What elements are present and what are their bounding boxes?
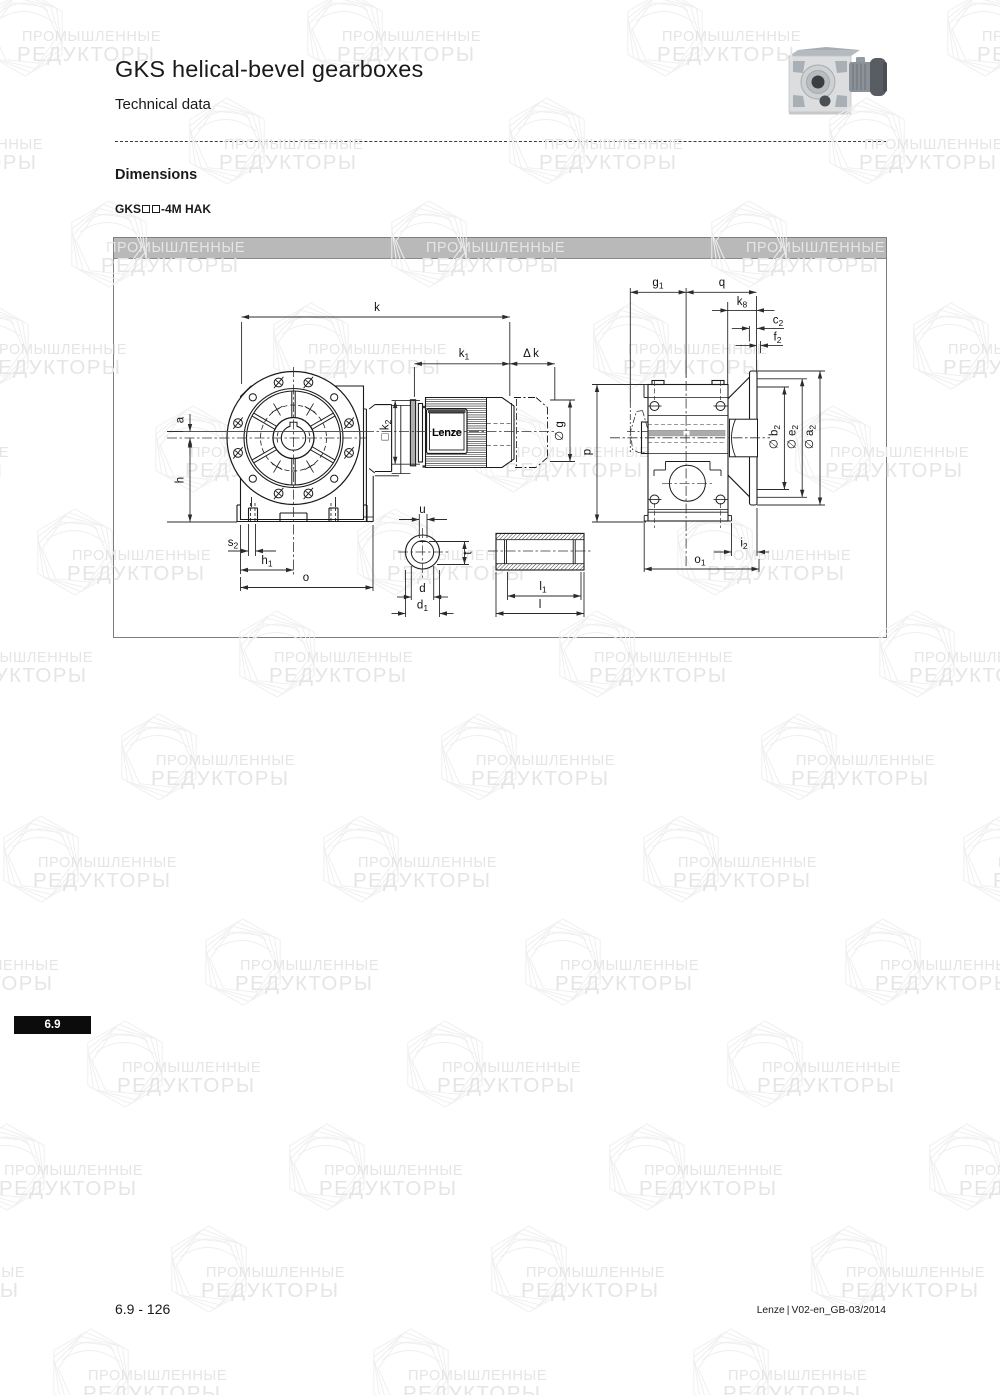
svg-text:∅ e2: ∅ e2 — [786, 425, 800, 450]
svg-text:□ k2: □ k2 — [380, 419, 394, 440]
svg-text:o1: o1 — [694, 554, 705, 568]
svg-text:l: l — [539, 599, 542, 611]
svg-text:∅ g: ∅ g — [554, 421, 566, 441]
svg-text:Δ k: Δ k — [523, 348, 539, 360]
svg-text:p: p — [582, 449, 594, 455]
svg-text:∅ a2: ∅ a2 — [804, 425, 818, 450]
svg-text:q: q — [719, 277, 725, 289]
svg-text:Lenze: Lenze — [432, 427, 462, 439]
svg-text:h1: h1 — [261, 555, 272, 569]
svg-text:o: o — [303, 572, 309, 584]
svg-text:u: u — [419, 504, 425, 516]
svg-text:c2: c2 — [773, 315, 784, 329]
svg-text:k1: k1 — [459, 348, 470, 362]
svg-text:∅ b2: ∅ b2 — [769, 425, 783, 450]
svg-text:d1: d1 — [417, 600, 428, 614]
svg-text:g1: g1 — [652, 277, 663, 291]
svg-text:f2: f2 — [774, 332, 782, 346]
svg-text:l1: l1 — [539, 581, 547, 595]
svg-text:d: d — [419, 583, 425, 595]
svg-text:k: k — [374, 302, 380, 314]
svg-text:k8: k8 — [737, 296, 748, 310]
svg-text:i2: i2 — [740, 538, 748, 552]
svg-text:h: h — [175, 477, 187, 483]
svg-text:s2: s2 — [228, 537, 239, 551]
svg-text:a: a — [175, 416, 187, 423]
